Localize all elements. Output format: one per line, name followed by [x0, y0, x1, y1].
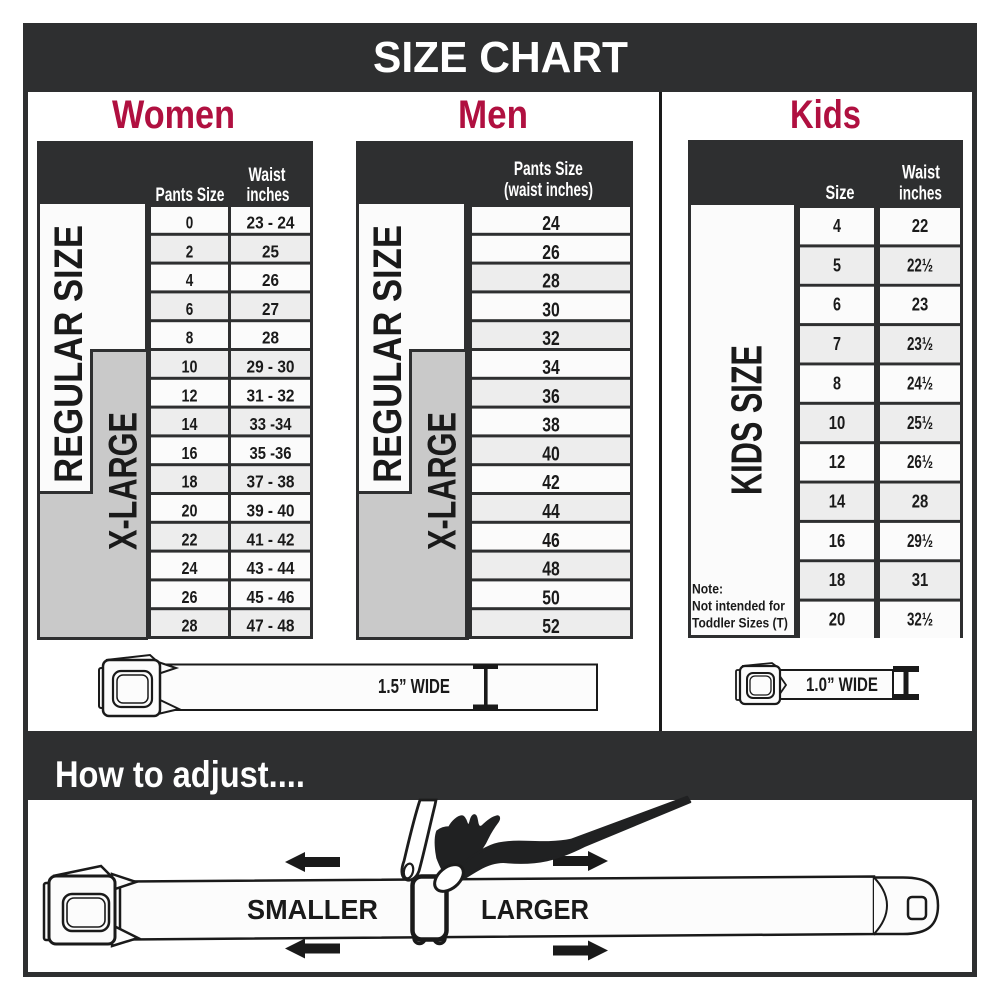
svg-text:45 - 46: 45 - 46	[247, 587, 295, 607]
svg-text:39 - 40: 39 - 40	[247, 500, 295, 520]
svg-text:31: 31	[912, 570, 928, 591]
svg-text:REGULAR SIZE: REGULAR SIZE	[365, 225, 410, 483]
svg-text:40: 40	[542, 441, 560, 465]
svg-text:2: 2	[186, 243, 194, 262]
svg-text:22½: 22½	[907, 255, 933, 276]
svg-text:Women: Women	[112, 91, 235, 136]
svg-text:Waist: Waist	[902, 162, 940, 183]
svg-text:18: 18	[829, 570, 845, 591]
svg-text:46: 46	[542, 528, 560, 552]
svg-text:Kids: Kids	[790, 92, 861, 137]
svg-text:22: 22	[181, 530, 197, 550]
svg-text:12: 12	[181, 386, 197, 406]
svg-text:SMALLER: SMALLER	[247, 894, 378, 925]
svg-text:31 - 32: 31 - 32	[247, 385, 295, 405]
svg-text:23½: 23½	[907, 334, 933, 355]
svg-text:inches: inches	[247, 185, 290, 206]
svg-text:18: 18	[181, 472, 197, 492]
svg-text:24: 24	[542, 211, 560, 235]
svg-text:inches: inches	[899, 183, 942, 204]
svg-text:26: 26	[542, 240, 560, 264]
svg-text:25: 25	[262, 241, 279, 261]
svg-text:10: 10	[829, 412, 845, 433]
svg-text:8: 8	[186, 329, 194, 348]
svg-text:50: 50	[542, 585, 560, 609]
svg-text:28: 28	[542, 269, 560, 293]
svg-text:1.0” WIDE: 1.0” WIDE	[806, 673, 878, 695]
svg-text:33 -34: 33 -34	[250, 415, 293, 435]
svg-text:X-LARGE: X-LARGE	[420, 412, 465, 550]
svg-text:32: 32	[542, 326, 560, 350]
svg-text:20: 20	[181, 501, 197, 521]
svg-text:Size: Size	[826, 182, 855, 203]
svg-text:6: 6	[833, 294, 841, 315]
svg-text:16: 16	[829, 530, 845, 551]
svg-text:34: 34	[542, 355, 560, 379]
svg-text:38: 38	[542, 413, 560, 437]
svg-text:4: 4	[186, 271, 194, 290]
svg-text:47 - 48: 47 - 48	[247, 616, 295, 636]
svg-text:28: 28	[181, 616, 197, 636]
svg-text:23 - 24: 23 - 24	[247, 212, 296, 232]
svg-text:48: 48	[542, 557, 560, 581]
svg-text:6: 6	[186, 300, 194, 319]
svg-text:Pants Size: Pants Size	[156, 184, 225, 206]
svg-text:Not intended for: Not intended for	[692, 598, 785, 614]
svg-text:30: 30	[542, 297, 560, 321]
svg-text:24: 24	[181, 559, 197, 579]
svg-text:5: 5	[833, 255, 841, 276]
svg-text:29½: 29½	[907, 531, 933, 552]
svg-text:37 - 38: 37 - 38	[247, 472, 295, 492]
svg-text:REGULAR SIZE: REGULAR SIZE	[46, 225, 91, 483]
svg-text:14: 14	[829, 491, 846, 512]
svg-text:10: 10	[181, 357, 197, 377]
svg-text:23: 23	[912, 294, 928, 315]
svg-text:0: 0	[186, 214, 194, 233]
svg-text:SIZE CHART: SIZE CHART	[373, 33, 628, 82]
svg-text:7: 7	[833, 333, 841, 354]
svg-text:(waist inches): (waist inches)	[504, 180, 593, 201]
svg-text:29 - 30: 29 - 30	[247, 356, 295, 376]
svg-text:4: 4	[833, 215, 842, 236]
svg-text:X-LARGE: X-LARGE	[101, 412, 146, 550]
svg-text:52: 52	[542, 614, 560, 638]
svg-text:KIDS SIZE: KIDS SIZE	[723, 345, 772, 495]
svg-text:43 - 44: 43 - 44	[247, 558, 296, 578]
svg-text:LARGER: LARGER	[481, 894, 589, 925]
svg-text:27: 27	[262, 299, 279, 319]
svg-text:36: 36	[542, 384, 560, 408]
svg-text:14: 14	[181, 415, 197, 435]
svg-text:20: 20	[829, 609, 845, 630]
svg-text:41 - 42: 41 - 42	[247, 529, 295, 549]
svg-text:8: 8	[833, 373, 841, 394]
svg-text:35 -36: 35 -36	[250, 444, 292, 464]
svg-text:Men: Men	[458, 92, 528, 137]
svg-text:12: 12	[829, 452, 845, 473]
svg-text:Note:: Note:	[692, 581, 723, 597]
svg-text:Pants Size: Pants Size	[514, 158, 583, 180]
svg-text:28: 28	[912, 491, 928, 512]
svg-text:28: 28	[262, 328, 279, 348]
svg-text:32½: 32½	[907, 610, 933, 631]
svg-text:42: 42	[542, 470, 560, 494]
svg-text:26: 26	[181, 587, 197, 607]
svg-text:26: 26	[262, 270, 279, 290]
svg-text:Toddler Sizes (T): Toddler Sizes (T)	[692, 615, 788, 631]
svg-text:25½: 25½	[907, 413, 933, 434]
svg-text:44: 44	[542, 499, 560, 523]
svg-text:26½: 26½	[907, 452, 933, 473]
svg-text:How to adjust....: How to adjust....	[55, 754, 305, 795]
svg-text:1.5” WIDE: 1.5” WIDE	[378, 675, 450, 698]
svg-text:22: 22	[912, 215, 928, 236]
svg-text:Waist: Waist	[249, 164, 286, 186]
svg-text:16: 16	[181, 443, 197, 463]
svg-text:24½: 24½	[907, 373, 933, 394]
